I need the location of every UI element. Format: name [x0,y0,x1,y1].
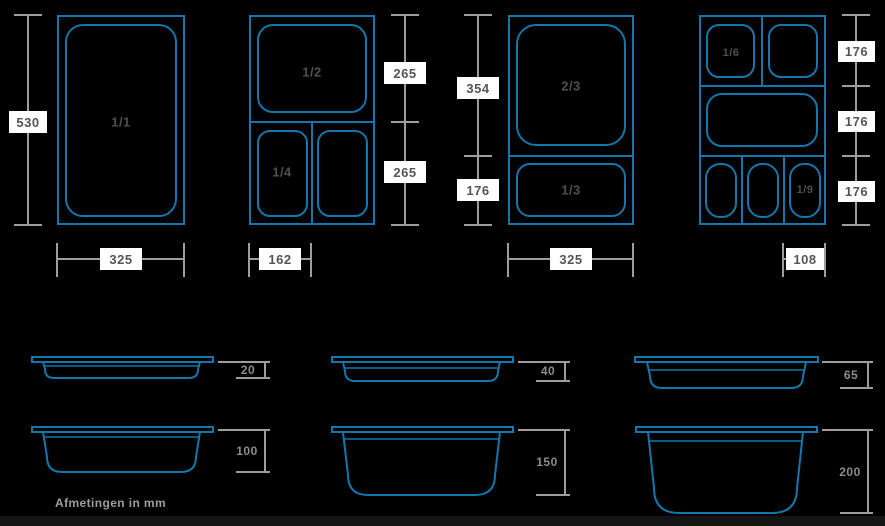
dimensions-note: Afmetingen in mm [55,496,166,510]
depth-label-40: 40 [541,364,555,378]
side-pan-150 [332,427,513,495]
side-pan-200 [636,427,817,513]
side-view-drawings [0,0,885,526]
side-pan-65 [635,357,818,388]
depth-label-65: 65 [844,368,858,382]
depth-label-100: 100 [236,444,258,458]
depth-label-20: 20 [241,363,255,377]
gastronorm-diagram: 1/1 530 325 1/2 1/4 265 265 162 2/3 1/3 … [0,0,885,526]
side-pan-100 [32,427,213,472]
depth-label-200: 200 [839,465,861,479]
side-pan-20 [32,357,213,378]
depth-label-150: 150 [536,455,558,469]
footer-bar [0,516,885,526]
side-pan-40 [332,357,513,381]
